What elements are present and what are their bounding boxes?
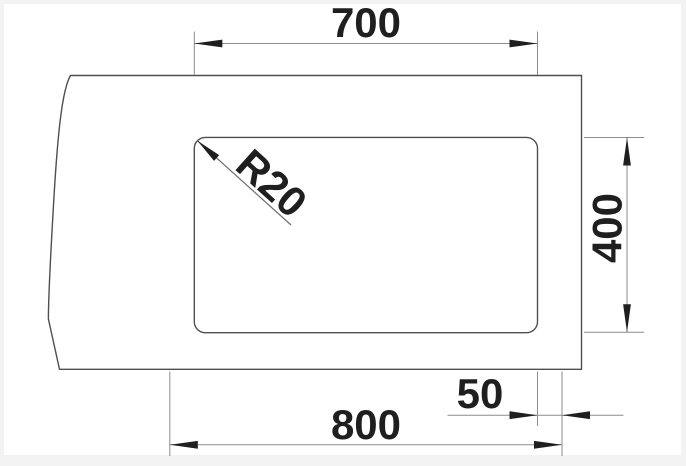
arrowhead	[562, 411, 590, 419]
countertop-edge	[48, 76, 581, 370]
radius-callout: R20	[195, 138, 316, 227]
dim-label-corner-radius: R20	[227, 140, 316, 226]
technical-drawing: 700 400 800 50 R20	[0, 0, 686, 466]
dim-label-bowl-width: 700	[331, 0, 401, 46]
dim-label-bowl-depth: 400	[584, 193, 631, 263]
arrowhead	[623, 304, 631, 332]
arrowhead	[194, 40, 222, 48]
arrowhead	[170, 441, 198, 449]
dimension-50: 50	[448, 370, 624, 426]
dim-label-side-clearance: 50	[457, 370, 504, 417]
arrowhead	[623, 138, 631, 166]
arrowhead	[510, 40, 538, 48]
arrowhead	[534, 441, 562, 449]
dim-label-cabinet-width: 800	[331, 401, 401, 448]
arrowhead	[510, 411, 538, 419]
dimension-700: 700	[194, 0, 537, 75]
countertop-outline	[48, 76, 581, 370]
dimension-400: 400	[584, 138, 645, 333]
